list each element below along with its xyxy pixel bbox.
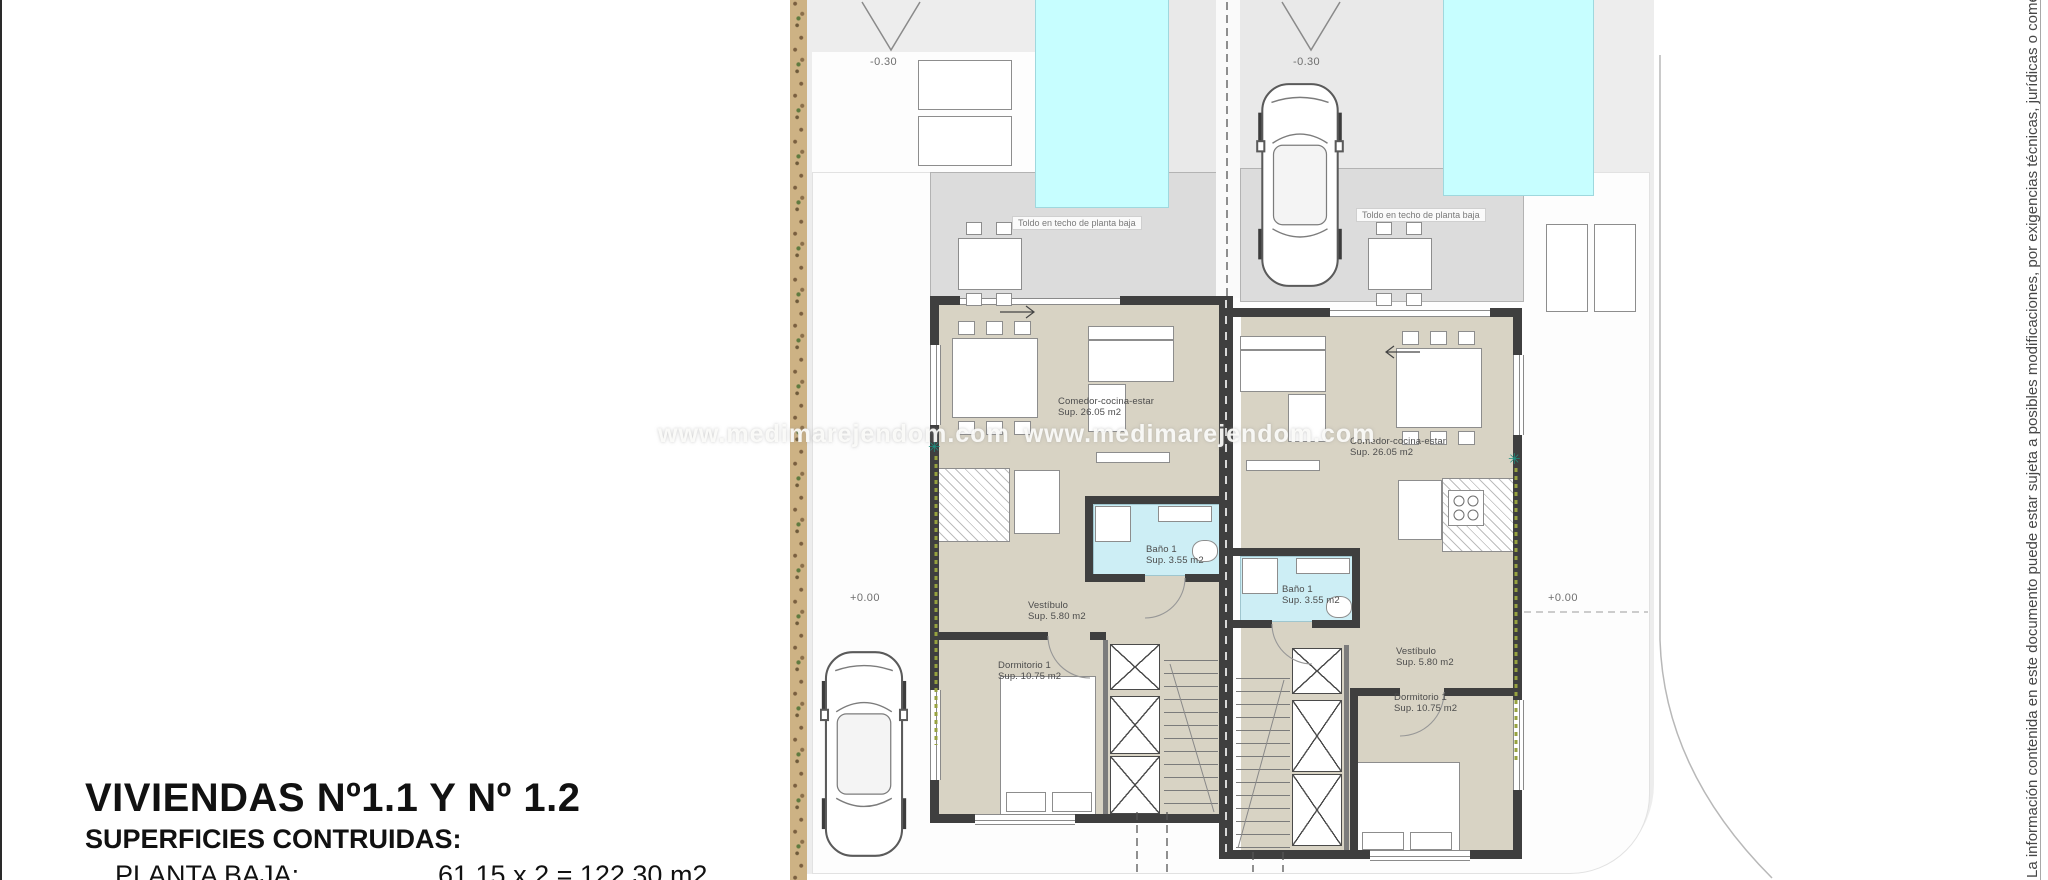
room-area: Sup. 5.80 m2 — [1028, 611, 1086, 622]
area-row-label: PLANTA BAJA: — [115, 860, 299, 880]
plant-icon: ✳ — [1508, 452, 1521, 467]
room-name: Dormitorio 1 — [1394, 692, 1457, 703]
watermark-text: www.medimarejendom.com — [658, 420, 1010, 448]
level-marker-street: -0.30 — [870, 56, 897, 68]
room-area: Sup. 10.75 m2 — [1394, 703, 1457, 714]
awning-banner-unit-1: Toldo en techo de planta baja — [1012, 216, 1142, 230]
room-area: Sup. 5.80 m2 — [1396, 657, 1454, 668]
room-label-hall-1: Vestíbulo Sup. 5.80 m2 — [1028, 600, 1086, 622]
room-label-bath-2: Baño 1 Sup. 3.55 m2 — [1282, 584, 1340, 606]
legal-disclaimer: La información contenida en este documen… — [2024, 0, 2041, 878]
room-name: Vestíbulo — [1396, 646, 1454, 657]
car-top — [1256, 78, 1344, 297]
level-marker-ground: +0.00 — [850, 592, 880, 604]
room-label-hall-2: Vestíbulo Sup. 5.80 m2 — [1396, 646, 1454, 668]
level-marker-ground: +0.00 — [1548, 592, 1578, 604]
room-label-living-1: Comedor-cocina-estar Sup. 26.05 m2 — [1058, 396, 1154, 418]
room-name: Baño 1 — [1282, 584, 1340, 595]
area-row-value: 61.15 x 2 = 122.30 m2 — [438, 860, 707, 880]
room-area: Sup. 26.05 m2 — [1058, 407, 1154, 418]
room-label-bath-1: Baño 1 Sup. 3.55 m2 — [1146, 544, 1204, 566]
floor-plan-sheet: ✳ ✳ Toldo en techo de planta baja Toldo … — [0, 0, 2048, 880]
level-marker-street: -0.30 — [1293, 56, 1320, 68]
room-name: Baño 1 — [1146, 544, 1204, 555]
room-area: Sup. 3.55 m2 — [1282, 595, 1340, 606]
room-area: Sup. 3.55 m2 — [1146, 555, 1204, 566]
sheet-title: VIVIENDAS Nº1.1 Y Nº 1.2 — [85, 776, 581, 821]
awning-banner-unit-2: Toldo en techo de planta baja — [1356, 208, 1486, 222]
room-name: Comedor-cocina-estar — [1058, 396, 1154, 407]
watermark-text: www.medimarejendom.com — [1024, 420, 1376, 448]
room-area: Sup. 10.75 m2 — [998, 671, 1061, 682]
room-label-bedroom-2: Dormitorio 1 Sup. 10.75 m2 — [1394, 692, 1457, 714]
watermark: www.medimarejendom.comwww.medimarejendom… — [658, 420, 1375, 449]
room-label-bedroom-1: Dormitorio 1 Sup. 10.75 m2 — [998, 660, 1061, 682]
room-name: Vestíbulo — [1028, 600, 1086, 611]
sheet-subtitle: SUPERFICIES CONTRUIDAS: — [85, 824, 462, 855]
room-name: Dormitorio 1 — [998, 660, 1061, 671]
sheet-right-border — [2040, 0, 2041, 880]
car-bottom — [820, 646, 908, 867]
